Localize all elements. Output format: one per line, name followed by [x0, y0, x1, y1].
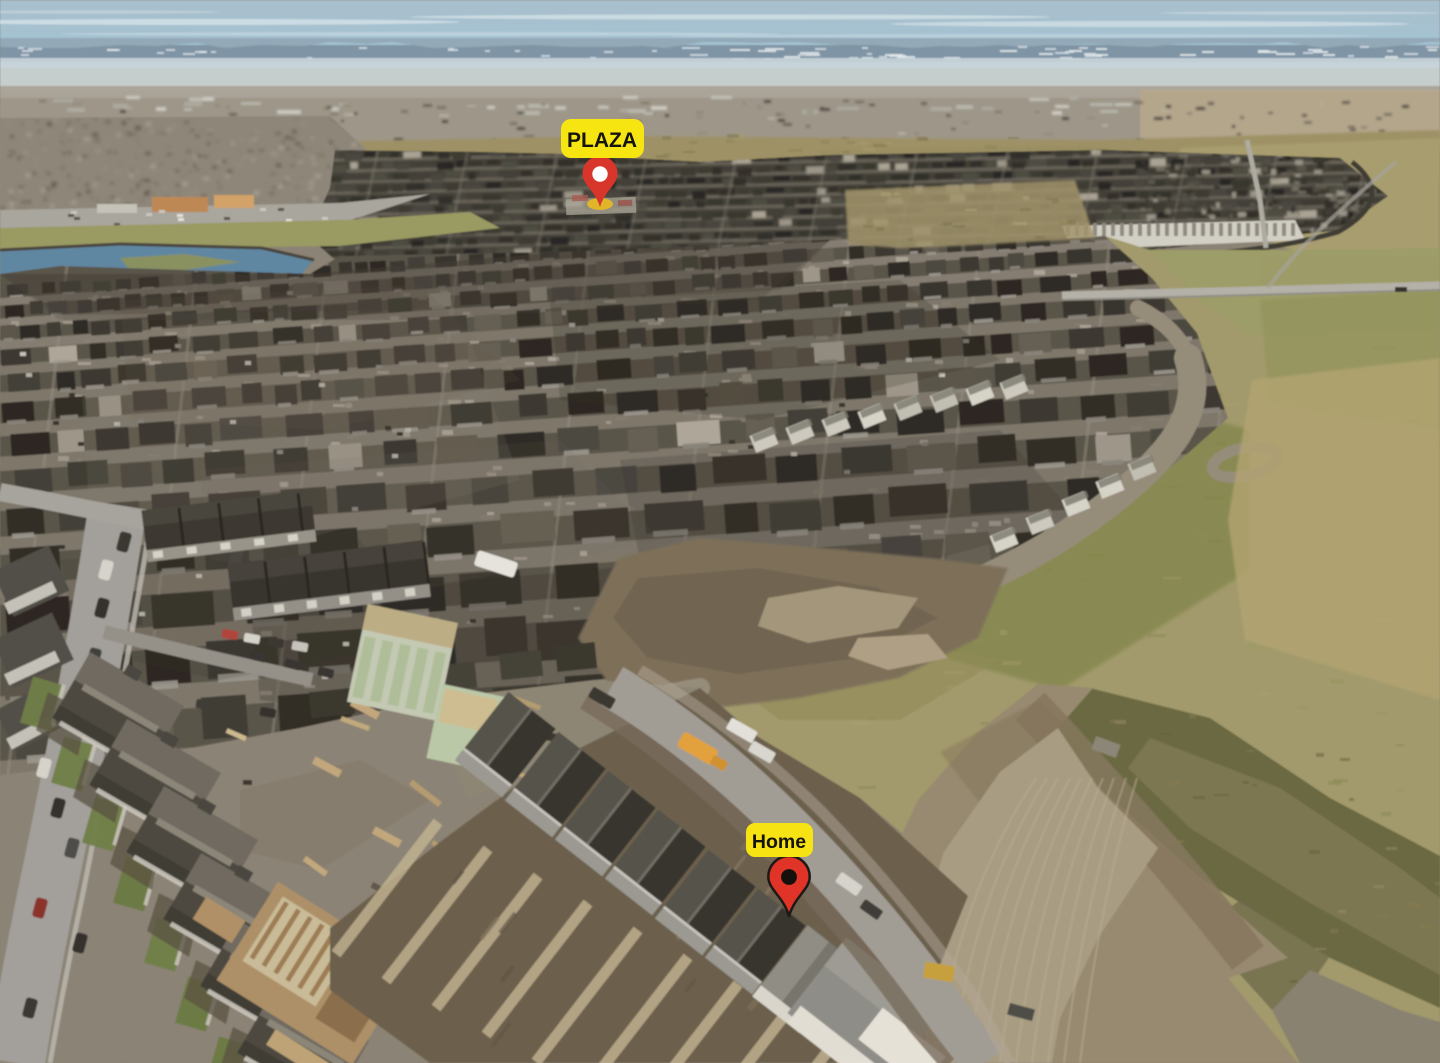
svg-text:PLAZA: PLAZA [567, 129, 637, 152]
svg-text:Home: Home [752, 831, 806, 853]
